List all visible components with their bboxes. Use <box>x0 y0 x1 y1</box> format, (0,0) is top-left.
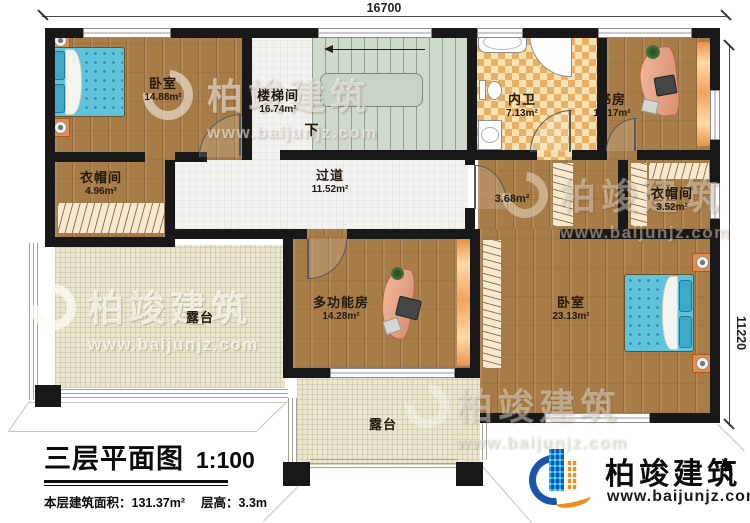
railing <box>310 467 458 468</box>
room-name: 卧室 <box>113 76 213 92</box>
plan-scale: 1:100 <box>196 447 255 473</box>
room-label-bedroom-1: 卧室 14.88m² <box>113 76 213 105</box>
stair-direction-arrow <box>324 45 333 53</box>
room-area: 16.74m² <box>228 104 328 117</box>
brand-website: www.baijunjz.com <box>607 488 750 506</box>
brand-logo: 柏竣建筑 www.baijunjz.com <box>527 447 749 519</box>
lamp-icon <box>54 121 67 134</box>
logo-building-orange-icon <box>566 459 578 491</box>
lamp-icon <box>696 357 709 370</box>
railing <box>482 423 483 460</box>
roof-edge-line <box>8 431 257 432</box>
title-meta: 本层建筑面积：131.37m²层高：3.3m <box>44 492 267 511</box>
terrace-column <box>35 385 61 407</box>
wardrobe-hall <box>552 162 574 227</box>
railing <box>292 398 293 462</box>
title-row: 三层平面图1:100 <box>44 437 267 476</box>
floor-plan: 16700 11220 柏竣建筑 www.baijunjz.com 柏竣建筑 w… <box>0 0 750 523</box>
wall-segment <box>572 150 607 160</box>
dimension-line-top <box>42 16 726 17</box>
lamp-icon <box>696 256 709 269</box>
dimension-right-value: 11220 <box>734 316 748 350</box>
brand-name: 柏竣建筑 <box>605 449 741 493</box>
stair-landing <box>320 73 423 107</box>
room-area: 23.13m² <box>521 311 621 324</box>
wardrobe-bedroom-2 <box>482 239 502 369</box>
wall-segment <box>637 150 720 160</box>
nightstand <box>692 253 712 272</box>
railing <box>288 398 289 462</box>
room-name: 衣帽间 <box>622 186 722 202</box>
railing <box>310 463 458 464</box>
room-label-terrace-bottom: 露台 <box>355 417 411 433</box>
bed-sheet <box>662 276 678 350</box>
room-area: 13.17m² <box>562 108 662 121</box>
window <box>710 90 720 140</box>
wardrobe-cloakroom-2-top <box>648 162 710 180</box>
title-block: 三层平面图1:100 本层建筑面积：131.37m²层高：3.3m <box>44 437 267 511</box>
floor-multiroom-door-gap <box>307 229 347 237</box>
railing <box>61 389 288 390</box>
sink-basin <box>481 127 499 143</box>
window <box>598 28 692 38</box>
door-leaf <box>239 114 241 156</box>
room-area: 14.88m² <box>113 92 213 105</box>
wall-segment <box>45 237 175 247</box>
floor-terrace-left <box>55 245 285 388</box>
wall-segment <box>710 28 720 423</box>
lit-shelf-multiroom <box>457 239 470 366</box>
plant-icon <box>646 45 660 59</box>
title-underline-2 <box>44 485 228 486</box>
railing <box>29 243 30 400</box>
room-area: 3.52m² <box>622 202 722 215</box>
plan-title: 三层平面图 <box>44 444 184 474</box>
terrace-column <box>283 462 310 486</box>
railing <box>37 243 38 400</box>
room-area: 4.96m² <box>51 186 151 199</box>
nightstand <box>692 354 712 373</box>
room-label-corridor: 过道 11.52m² <box>280 168 380 197</box>
room-name: 多功能房 <box>291 295 391 311</box>
room-name: 书房 <box>562 92 662 108</box>
wall-segment <box>597 28 607 150</box>
terrace-column <box>456 462 483 486</box>
window <box>330 368 455 378</box>
wall-segment <box>347 229 480 239</box>
dimension-line-right <box>729 46 730 426</box>
lit-shelf-study <box>697 42 710 146</box>
wall-segment <box>45 152 145 162</box>
room-name: 露台 <box>172 310 228 326</box>
window <box>545 413 650 423</box>
room-area: 11.52m² <box>280 184 380 197</box>
roof-edge-line <box>481 465 532 523</box>
room-name: 衣帽间 <box>51 170 151 186</box>
room-area: 14.28m² <box>291 311 391 324</box>
room-label-study: 书房 13.17m² <box>562 92 662 121</box>
room-name: 露台 <box>355 417 411 433</box>
window <box>318 28 432 38</box>
room-label-stairwell: 楼梯间 16.74m² <box>228 88 328 117</box>
room-name: 楼梯间 <box>228 88 328 104</box>
wall-segment <box>467 150 537 160</box>
roof-edge-line <box>8 401 30 432</box>
wall-segment <box>165 160 175 237</box>
title-underline <box>44 480 228 483</box>
wall-segment <box>45 28 55 247</box>
room-label-hall: 3.68m² <box>470 193 554 207</box>
room-area: 3.68m² <box>470 193 554 207</box>
roof-edge-line <box>263 486 298 521</box>
floor-hall-connector <box>480 229 560 237</box>
floor-height-label: 层高：3.3m <box>201 496 267 510</box>
window <box>83 28 171 38</box>
floor-area-label: 本层建筑面积：131.37m² <box>44 496 185 510</box>
room-label-multiroom: 多功能房 14.28m² <box>291 295 391 324</box>
door-leaf <box>307 239 309 279</box>
logo-building-blue-icon <box>549 449 564 491</box>
room-name: 内卫 <box>472 92 572 108</box>
plant-icon <box>391 267 404 280</box>
railing <box>33 243 34 400</box>
room-label-cloakroom-2: 衣帽间 3.52m² <box>622 186 722 215</box>
window <box>477 28 523 38</box>
roof-edge-line <box>28 402 287 403</box>
dimension-tick <box>720 9 731 20</box>
room-name: 卧室 <box>521 295 621 311</box>
floor-study-door-gap <box>607 150 637 160</box>
wall-segment <box>465 208 475 229</box>
dimension-tick <box>37 9 48 20</box>
room-area: 7.13m² <box>472 108 572 121</box>
wardrobe-cloakroom-1 <box>57 202 165 234</box>
dimension-top-value: 16700 <box>329 1 439 15</box>
room-label-bathroom: 内卫 7.13m² <box>472 92 572 121</box>
room-label-cloakroom-1: 衣帽间 4.96m² <box>51 170 151 199</box>
pillow <box>679 280 692 312</box>
railing <box>310 459 458 460</box>
room-label-terrace-left: 露台 <box>172 310 228 326</box>
room-label-bedroom-2: 卧室 23.13m² <box>521 295 621 324</box>
stair-down-label: 下 <box>300 122 324 140</box>
stair-direction-line <box>333 49 425 50</box>
wall-segment <box>560 229 710 239</box>
railing <box>486 423 487 460</box>
pillow <box>679 316 692 348</box>
room-name: 过道 <box>280 168 380 184</box>
mattress <box>626 276 662 350</box>
railing <box>61 397 288 398</box>
railing <box>296 398 297 462</box>
wall-segment <box>280 150 470 160</box>
door-leaf <box>634 118 636 151</box>
roof-edge-line <box>257 401 288 431</box>
railing <box>61 393 288 394</box>
wall-segment <box>470 237 480 368</box>
